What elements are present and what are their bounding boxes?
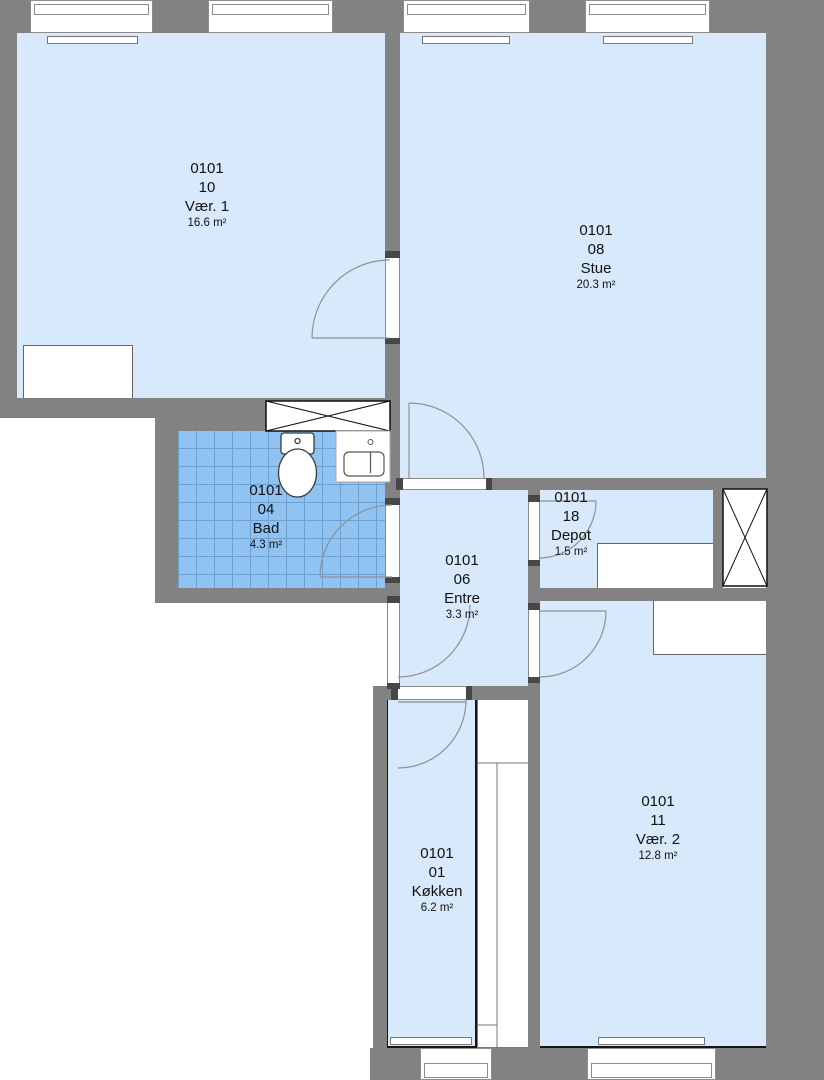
room-id: 0101 — [185, 159, 229, 178]
room-area: 16.6 m² — [185, 216, 229, 231]
room-label-kokken: 0101 01 Køkken 6.2 m² — [412, 844, 463, 916]
room-number: 04 — [249, 500, 282, 519]
sink-tap-dot — [368, 440, 373, 445]
room-label-bad: 0101 04 Bad 4.3 m² — [249, 481, 282, 553]
room-area: 1.5 m² — [551, 545, 591, 560]
room-area: 20.3 m² — [577, 278, 616, 293]
room-label-entre: 0101 06 Entre 3.3 m² — [444, 551, 480, 623]
room-label-stue: 0101 08 Stue 20.3 m² — [577, 221, 616, 293]
door-swing-arc — [320, 505, 392, 577]
room-name: Bad — [249, 519, 282, 538]
floor-plan: 0101 10 Vær. 1 16.6 m² 0101 08 Stue 20.3… — [0, 0, 824, 1080]
door-swing-arc — [540, 611, 606, 677]
room-label-vaer2: 0101 11 Vær. 2 12.8 m² — [636, 792, 680, 864]
room-number: 06 — [444, 570, 480, 589]
door-swing-arc — [398, 700, 466, 768]
door-swing-arc — [312, 260, 390, 338]
room-id: 0101 — [444, 551, 480, 570]
room-id: 0101 — [412, 844, 463, 863]
room-number: 11 — [636, 811, 680, 830]
room-label-vaer1: 0101 10 Vær. 1 16.6 m² — [185, 159, 229, 231]
room-id: 0101 — [636, 792, 680, 811]
room-number: 10 — [185, 178, 229, 197]
room-area: 6.2 m² — [412, 901, 463, 916]
room-area: 4.3 m² — [249, 538, 282, 553]
room-name: Vær. 2 — [636, 830, 680, 849]
room-name: Depot — [551, 526, 591, 545]
room-area: 12.8 m² — [636, 849, 680, 864]
room-id: 0101 — [551, 488, 591, 507]
room-name: Køkken — [412, 882, 463, 901]
room-name: Vær. 1 — [185, 197, 229, 216]
door-swing-arc — [409, 403, 484, 478]
room-number: 18 — [551, 507, 591, 526]
room-area: 3.3 m² — [444, 608, 480, 623]
room-name: Entre — [444, 589, 480, 608]
room-number: 08 — [577, 240, 616, 259]
room-id: 0101 — [249, 481, 282, 500]
toilet-bowl — [279, 449, 317, 497]
toilet-button — [295, 439, 300, 444]
room-number: 01 — [412, 863, 463, 882]
room-name: Stue — [577, 259, 616, 278]
room-label-depot: 0101 18 Depot 1.5 m² — [551, 488, 591, 560]
plan-symbol-overlay — [0, 0, 824, 1080]
room-id: 0101 — [577, 221, 616, 240]
